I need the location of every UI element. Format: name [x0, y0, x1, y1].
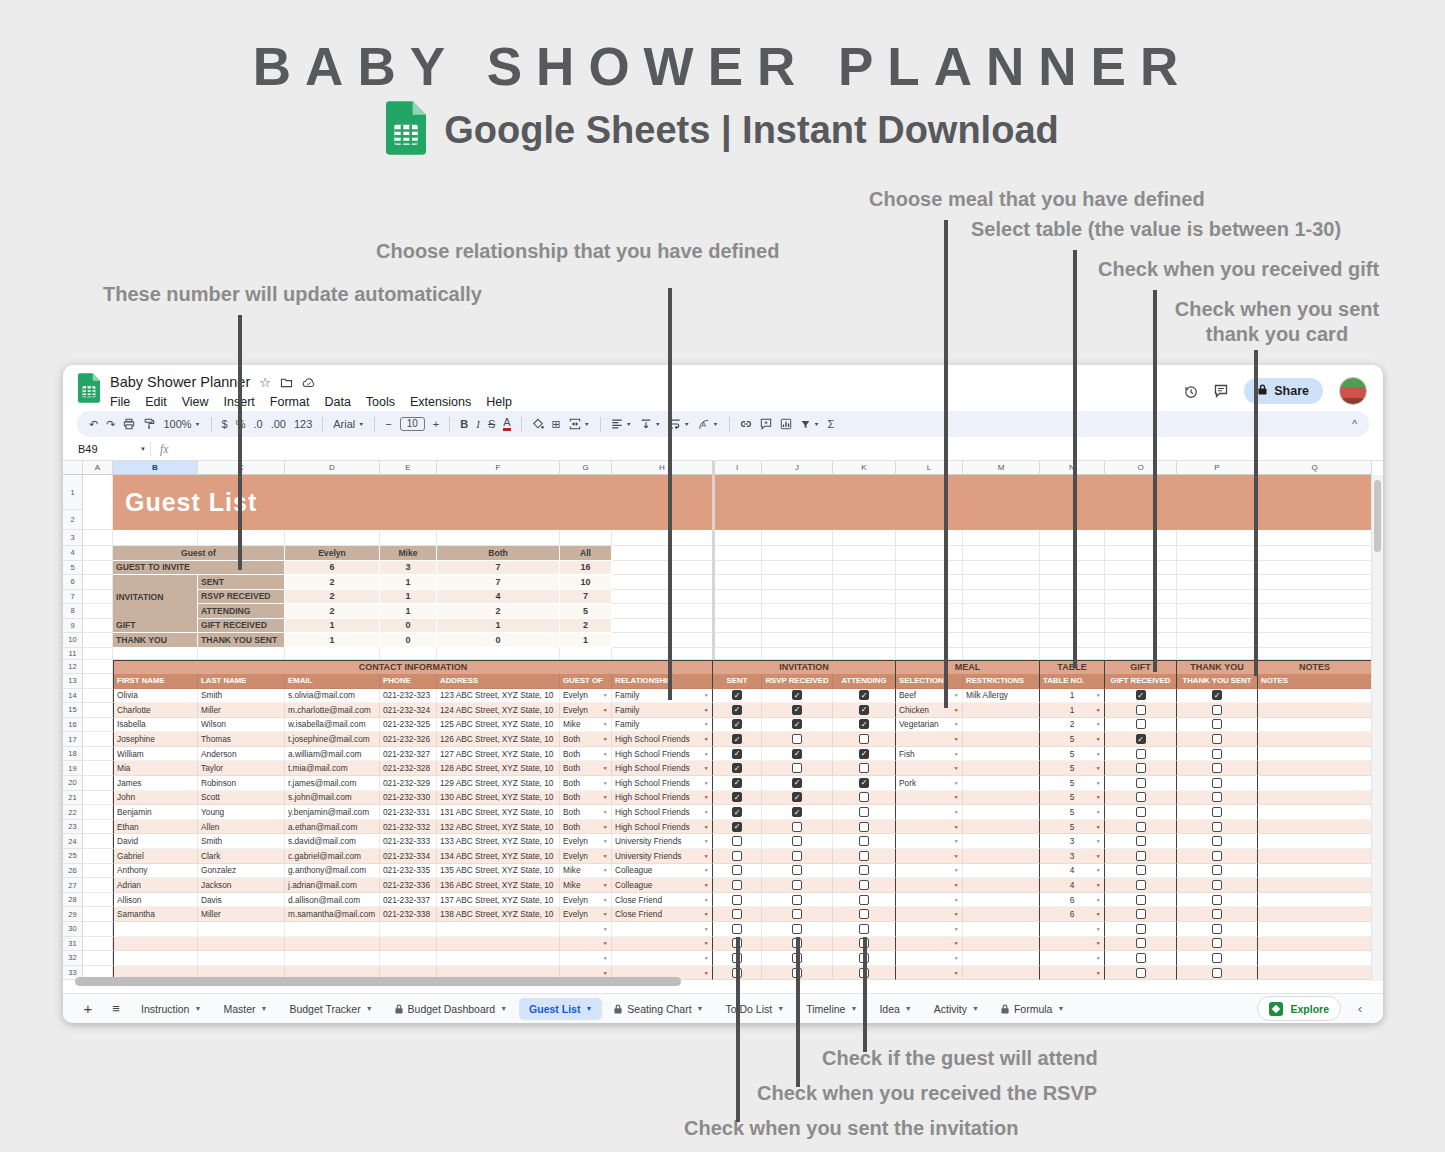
section-header-gift[interactable]: GIFT	[1105, 660, 1177, 674]
column-header-O[interactable]: O	[1105, 461, 1177, 475]
empty-cell[interactable]	[612, 530, 713, 546]
cell-restrictions[interactable]	[963, 747, 1040, 762]
checkbox-thank-you-sent[interactable]	[1212, 938, 1222, 948]
summary-sub-label[interactable]: GIFT RECEIVED	[198, 619, 285, 634]
cell-restrictions[interactable]	[963, 951, 1040, 966]
dropdown-arrow-icon[interactable]: ▼	[603, 751, 608, 756]
table-header-sent[interactable]: SENT	[713, 674, 762, 689]
column-header-L[interactable]: L	[896, 461, 963, 475]
cell-email[interactable]: t.josephine@mail.com	[285, 732, 380, 747]
empty-cell[interactable]	[612, 546, 713, 561]
font-select[interactable]: Arial▼	[333, 419, 364, 430]
row-header[interactable]: 29	[63, 907, 83, 922]
empty-cell[interactable]	[1105, 561, 1177, 576]
empty-cell[interactable]	[1258, 619, 1372, 634]
cell-address[interactable]: 137 ABC Street, XYZ State, 10	[437, 893, 560, 908]
cell-notes[interactable]	[1258, 820, 1372, 835]
dropdown-guest-of[interactable]: Evelyn▼	[560, 893, 612, 908]
summary-value[interactable]: 1	[380, 575, 437, 590]
dropdown-relationship[interactable]: ▼	[612, 951, 713, 966]
dropdown-arrow-icon[interactable]: ▼	[954, 824, 959, 829]
summary-header-evelyn[interactable]: Evelyn	[285, 546, 380, 561]
section-header-contact-information[interactable]: CONTACT INFORMATION	[113, 660, 713, 674]
vertical-scrollbar[interactable]	[1371, 475, 1383, 981]
empty-cell[interactable]	[1105, 648, 1177, 660]
dropdown-arrow-icon[interactable]: ▼	[704, 955, 709, 960]
summary-group-label[interactable]: GIFT	[113, 619, 198, 634]
insert-comment-icon[interactable]	[760, 418, 772, 430]
dropdown-relationship[interactable]: High School Friends▼	[612, 805, 713, 820]
row-header[interactable]: 3	[63, 530, 83, 546]
dropdown-arrow-icon[interactable]: ▼	[603, 897, 608, 902]
dropdown-table-no[interactable]: 3▼	[1040, 834, 1105, 849]
empty-cell[interactable]	[762, 648, 833, 660]
dropdown-arrow-icon[interactable]: ▼	[704, 722, 709, 727]
empty-cell[interactable]	[896, 604, 963, 619]
checkbox-gift-received[interactable]	[1136, 763, 1146, 773]
menu-edit[interactable]: Edit	[145, 395, 167, 409]
cell-phone[interactable]: 021-232-334	[380, 849, 437, 864]
dropdown-relationship[interactable]: Close Friend▼	[612, 893, 713, 908]
empty-cell[interactable]	[83, 864, 113, 879]
dropdown-meal-selection[interactable]: Fish▼	[896, 747, 963, 762]
empty-cell[interactable]	[1105, 575, 1177, 590]
empty-cell[interactable]	[713, 575, 762, 590]
tab-budget-dashboard[interactable]: Budget Dashboard▼	[385, 998, 518, 1020]
checkbox-sent[interactable]	[732, 851, 742, 861]
dropdown-arrow-icon[interactable]: ▼	[704, 707, 709, 712]
checkbox-attending[interactable]: ✓	[859, 705, 869, 715]
dropdown-arrow-icon[interactable]: ▼	[1096, 751, 1101, 756]
cell-email[interactable]: g.anthony@mail.com	[285, 864, 380, 879]
checkbox-gift-received[interactable]	[1136, 822, 1146, 832]
dropdown-arrow-icon[interactable]: ▼	[603, 926, 608, 931]
cell-restrictions[interactable]	[963, 849, 1040, 864]
checkbox-thank-you-sent[interactable]	[1212, 705, 1222, 715]
checkbox-thank-you-sent[interactable]	[1212, 924, 1222, 934]
checkbox-gift-received[interactable]	[1136, 880, 1146, 890]
row-header[interactable]: 27	[63, 878, 83, 893]
checkbox-gift-received[interactable]	[1136, 807, 1146, 817]
checkbox-sent[interactable]: ✓	[732, 778, 742, 788]
cell-first-name[interactable]	[113, 937, 198, 952]
empty-cell[interactable]	[83, 849, 113, 864]
dropdown-arrow-icon[interactable]: ▼	[704, 941, 709, 946]
dropdown-relationship[interactable]: Colleague▼	[612, 878, 713, 893]
checkbox-attending[interactable]	[859, 851, 869, 861]
dropdown-arrow-icon[interactable]: ▼	[1096, 868, 1101, 873]
checkbox-sent[interactable]: ✓	[732, 763, 742, 773]
empty-cell[interactable]	[83, 660, 113, 674]
checkbox-rsvp-received[interactable]	[792, 822, 802, 832]
checkbox-rsvp-received[interactable]: ✓	[792, 690, 802, 700]
row-header[interactable]: 23	[63, 820, 83, 835]
dropdown-arrow-icon[interactable]: ▼	[1096, 926, 1101, 931]
cell-phone[interactable]: 021-232-331	[380, 805, 437, 820]
empty-cell[interactable]	[83, 951, 113, 966]
empty-cell[interactable]	[560, 530, 612, 546]
cell-phone[interactable]: 021-232-332	[380, 820, 437, 835]
section-header-invitation[interactable]: INVITATION	[713, 660, 896, 674]
dropdown-arrow-icon[interactable]: ▼	[704, 970, 709, 975]
empty-cell[interactable]	[1258, 530, 1372, 546]
dropdown-table-no[interactable]: 5▼	[1040, 805, 1105, 820]
cell-phone[interactable]: 021-232-329	[380, 776, 437, 791]
cell-last-name[interactable]: Robinson	[198, 776, 285, 791]
column-header-B[interactable]: B	[113, 461, 198, 475]
checkbox-attending[interactable]	[859, 924, 869, 934]
empty-cell[interactable]	[612, 619, 713, 634]
increase-decimal-icon[interactable]: .00	[271, 419, 286, 430]
dropdown-table-no[interactable]: 5▼	[1040, 761, 1105, 776]
checkbox-sent[interactable]: ✓	[732, 734, 742, 744]
dropdown-arrow-icon[interactable]: ▼	[1096, 853, 1101, 858]
cell-notes[interactable]	[1258, 849, 1372, 864]
empty-cell[interactable]	[833, 561, 896, 576]
dropdown-table-no[interactable]: 1▼	[1040, 689, 1105, 704]
cell-last-name[interactable]: Clark	[198, 849, 285, 864]
empty-cell[interactable]	[762, 575, 833, 590]
empty-cell[interactable]	[833, 633, 896, 648]
chevron-down-icon[interactable]: ▼	[972, 1005, 979, 1012]
column-header-K[interactable]: K	[833, 461, 896, 475]
empty-cell[interactable]	[83, 820, 113, 835]
row-header[interactable]: 10	[63, 633, 83, 648]
cell-restrictions[interactable]	[963, 732, 1040, 747]
dropdown-meal-selection[interactable]: ▼	[896, 864, 963, 879]
summary-sub-label[interactable]: SENT	[198, 575, 285, 590]
dropdown-arrow-icon[interactable]: ▼	[603, 912, 608, 917]
empty-cell[interactable]	[380, 530, 437, 546]
row-header[interactable]: 18	[63, 747, 83, 762]
cell-last-name[interactable]: Davis	[198, 893, 285, 908]
name-box[interactable]: B49 ▼	[78, 443, 146, 455]
empty-cell[interactable]	[1177, 604, 1258, 619]
dropdown-arrow-icon[interactable]: ▼	[954, 839, 959, 844]
row-header[interactable]: 4	[63, 546, 83, 561]
checkbox-gift-received[interactable]	[1136, 938, 1146, 948]
empty-cell[interactable]	[896, 590, 963, 605]
dropdown-meal-selection[interactable]: ▼	[896, 732, 963, 747]
dropdown-arrow-icon[interactable]: ▼	[1096, 795, 1101, 800]
dropdown-arrow-icon[interactable]: ▼	[704, 824, 709, 829]
dropdown-relationship[interactable]: ▼	[612, 937, 713, 952]
tab-timeline[interactable]: Timeline▼	[796, 998, 867, 1020]
dropdown-arrow-icon[interactable]: ▼	[1096, 780, 1101, 785]
dropdown-relationship[interactable]: High School Friends▼	[612, 761, 713, 776]
empty-cell[interactable]	[83, 619, 113, 634]
cell-restrictions[interactable]	[963, 893, 1040, 908]
cell-notes[interactable]	[1258, 761, 1372, 776]
cell-address[interactable]: 138 ABC Street, XYZ State, 10	[437, 907, 560, 922]
cell-restrictions[interactable]	[963, 791, 1040, 806]
dropdown-arrow-icon[interactable]: ▼	[603, 868, 608, 873]
dropdown-arrow-icon[interactable]: ▼	[603, 766, 608, 771]
checkbox-attending[interactable]	[859, 792, 869, 802]
summary-value[interactable]: 4	[437, 590, 560, 605]
dropdown-guest-of[interactable]: Both▼	[560, 820, 612, 835]
checkbox-gift-received[interactable]	[1136, 909, 1146, 919]
checkbox-gift-received[interactable]	[1136, 719, 1146, 729]
checkbox-thank-you-sent[interactable]	[1212, 909, 1222, 919]
empty-cell[interactable]	[560, 648, 612, 660]
table-header-thank-you-sent[interactable]: THANK YOU SENT	[1177, 674, 1258, 689]
checkbox-attending[interactable]: ✓	[859, 778, 869, 788]
dropdown-guest-of[interactable]: Evelyn▼	[560, 703, 612, 718]
dropdown-arrow-icon[interactable]: ▼	[1096, 839, 1101, 844]
checkbox-rsvp-received[interactable]	[792, 865, 802, 875]
checkbox-attending[interactable]: ✓	[859, 719, 869, 729]
checkbox-rsvp-received[interactable]	[792, 895, 802, 905]
summary-value[interactable]: 6	[285, 561, 380, 576]
dropdown-guest-of[interactable]: Mike▼	[560, 878, 612, 893]
empty-cell[interactable]	[833, 530, 896, 546]
cell-last-name[interactable]: Gonzalez	[198, 864, 285, 879]
cell-email[interactable]: t.mia@mail.com	[285, 761, 380, 776]
cell-first-name[interactable]: Gabriel	[113, 849, 198, 864]
empty-cell[interactable]	[1105, 619, 1177, 634]
cell-address[interactable]	[437, 951, 560, 966]
cell-phone[interactable]: 021-232-323	[380, 689, 437, 704]
dropdown-arrow-icon[interactable]: ▼	[704, 926, 709, 931]
cell-email[interactable]: d.allison@mail.com	[285, 893, 380, 908]
italic-icon[interactable]: I	[476, 419, 480, 430]
chevron-down-icon[interactable]: ▼	[500, 1005, 507, 1012]
summary-value[interactable]: 1	[380, 590, 437, 605]
cell-last-name[interactable]: Taylor	[198, 761, 285, 776]
summary-value[interactable]: 1	[285, 619, 380, 634]
dropdown-arrow-icon[interactable]: ▼	[704, 868, 709, 873]
checkbox-gift-received[interactable]	[1136, 836, 1146, 846]
empty-cell[interactable]	[83, 732, 113, 747]
empty-cell[interactable]	[437, 648, 560, 660]
tab-budget-tracker[interactable]: Budget Tracker▼	[279, 998, 382, 1020]
vertical-scrollbar-thumb[interactable]	[1374, 480, 1381, 552]
checkbox-gift-received[interactable]	[1136, 778, 1146, 788]
dropdown-arrow-icon[interactable]: ▼	[954, 897, 959, 902]
undo-icon[interactable]: ↶	[89, 419, 98, 430]
checkbox-attending[interactable]	[859, 822, 869, 832]
empty-cell[interactable]	[83, 546, 113, 561]
menu-tools[interactable]: Tools	[366, 395, 395, 409]
functions-icon[interactable]: Σ	[828, 419, 835, 430]
empty-cell[interactable]	[83, 530, 113, 546]
cell-restrictions[interactable]	[963, 922, 1040, 937]
empty-cell[interactable]	[762, 546, 833, 561]
table-header-rsvp-received[interactable]: RSVP RECEIVED	[762, 674, 833, 689]
cell-address[interactable]: 136 ABC Street, XYZ State, 10	[437, 878, 560, 893]
empty-cell[interactable]	[83, 776, 113, 791]
empty-cell[interactable]	[83, 561, 113, 576]
empty-cell[interactable]	[896, 546, 963, 561]
dropdown-meal-selection[interactable]: ▼	[896, 878, 963, 893]
checkbox-sent[interactable]: ✓	[732, 749, 742, 759]
summary-group-label[interactable]	[113, 604, 198, 619]
row-header[interactable]: 11	[63, 648, 83, 660]
table-header-address[interactable]: ADDRESS	[437, 674, 560, 689]
dropdown-arrow-icon[interactable]: ▼	[1096, 707, 1101, 712]
cell-email[interactable]	[285, 922, 380, 937]
empty-cell[interactable]	[1177, 648, 1258, 660]
dropdown-table-no[interactable]: 5▼	[1040, 820, 1105, 835]
cell-phone[interactable]	[380, 937, 437, 952]
dropdown-meal-selection[interactable]: ▼	[896, 791, 963, 806]
cell-first-name[interactable]	[113, 922, 198, 937]
dropdown-arrow-icon[interactable]: ▼	[603, 970, 608, 975]
paint-format-icon[interactable]	[143, 418, 155, 430]
checkbox-thank-you-sent[interactable]: ✓	[1212, 690, 1222, 700]
sheet-title-banner[interactable]: Guest List	[113, 475, 1372, 530]
dropdown-table-no[interactable]: ▼	[1040, 951, 1105, 966]
empty-cell[interactable]	[1258, 575, 1372, 590]
cell-first-name[interactable]: Mia	[113, 761, 198, 776]
cell-email[interactable]	[285, 951, 380, 966]
empty-cell[interactable]	[83, 937, 113, 952]
empty-cell[interactable]	[113, 648, 198, 660]
chevron-down-icon[interactable]: ▼	[585, 1005, 592, 1012]
dropdown-arrow-icon[interactable]: ▼	[954, 912, 959, 917]
dropdown-arrow-icon[interactable]: ▼	[704, 882, 709, 887]
cell-email[interactable]: j.adrian@mail.com	[285, 878, 380, 893]
menu-file[interactable]: File	[110, 395, 130, 409]
empty-cell[interactable]	[612, 561, 713, 576]
dropdown-arrow-icon[interactable]: ▼	[603, 707, 608, 712]
dropdown-arrow-icon[interactable]: ▼	[954, 780, 959, 785]
empty-cell[interactable]	[713, 648, 762, 660]
checkbox-rsvp-received[interactable]	[792, 851, 802, 861]
cell-notes[interactable]	[1258, 907, 1372, 922]
cell-address[interactable]: 135 ABC Street, XYZ State, 10	[437, 864, 560, 879]
cell-email[interactable]: a.ethan@mail.com	[285, 820, 380, 835]
checkbox-sent[interactable]: ✓	[732, 719, 742, 729]
cell-last-name[interactable]: Thomas	[198, 732, 285, 747]
summary-group-label[interactable]: INVITATION	[113, 590, 198, 605]
dropdown-guest-of[interactable]: Both▼	[560, 776, 612, 791]
empty-cell[interactable]	[713, 590, 762, 605]
cell-first-name[interactable]: Benjamin	[113, 805, 198, 820]
checkbox-gift-received[interactable]	[1136, 968, 1146, 978]
checkbox-rsvp-received[interactable]: ✓	[792, 792, 802, 802]
checkbox-sent[interactable]: ✓	[732, 690, 742, 700]
row-header[interactable]: 24	[63, 834, 83, 849]
dropdown-table-no[interactable]: ▼	[1040, 966, 1105, 981]
table-header-last-name[interactable]: LAST NAME	[198, 674, 285, 689]
cell-notes[interactable]	[1258, 689, 1372, 704]
empty-cell[interactable]	[1177, 561, 1258, 576]
empty-cell[interactable]	[1105, 546, 1177, 561]
checkbox-rsvp-received[interactable]	[792, 909, 802, 919]
dropdown-relationship[interactable]: Colleague▼	[612, 864, 713, 879]
increase-font-size-icon[interactable]: +	[433, 419, 439, 430]
dropdown-arrow-icon[interactable]: ▼	[954, 941, 959, 946]
dropdown-relationship[interactable]: Family▼	[612, 718, 713, 733]
dropdown-arrow-icon[interactable]: ▼	[603, 722, 608, 727]
empty-cell[interactable]	[896, 619, 963, 634]
dropdown-arrow-icon[interactable]: ▼	[954, 809, 959, 814]
summary-group-label[interactable]	[113, 575, 198, 590]
checkbox-rsvp-received[interactable]: ✓	[792, 705, 802, 715]
dropdown-guest-of[interactable]: Mike▼	[560, 718, 612, 733]
dropdown-arrow-icon[interactable]: ▼	[954, 751, 959, 756]
cell-restrictions[interactable]	[963, 776, 1040, 791]
dropdown-table-no[interactable]: 4▼	[1040, 878, 1105, 893]
column-header-A[interactable]: A	[83, 461, 113, 475]
dropdown-arrow-icon[interactable]: ▼	[704, 751, 709, 756]
cell-notes[interactable]	[1258, 805, 1372, 820]
row-header[interactable]: 12	[63, 660, 83, 674]
dropdown-arrow-icon[interactable]: ▼	[603, 780, 608, 785]
summary-sub-label[interactable]: ATTENDING	[198, 604, 285, 619]
cell-notes[interactable]	[1258, 922, 1372, 937]
summary-value[interactable]: 3	[380, 561, 437, 576]
dropdown-guest-of[interactable]: Evelyn▼	[560, 834, 612, 849]
cell-notes[interactable]	[1258, 834, 1372, 849]
table-header-phone[interactable]: PHONE	[380, 674, 437, 689]
dropdown-arrow-icon[interactable]: ▼	[954, 853, 959, 858]
cell-email[interactable]: s.david@mail.com	[285, 834, 380, 849]
summary-value[interactable]: 0	[437, 633, 560, 648]
dropdown-table-no[interactable]: 5▼	[1040, 776, 1105, 791]
empty-cell[interactable]	[963, 633, 1040, 648]
tab-instruction[interactable]: Instruction▼	[131, 998, 211, 1020]
vertical-align-icon[interactable]: ▼	[640, 418, 661, 430]
add-sheet-icon[interactable]: +	[75, 1000, 101, 1017]
dropdown-table-no[interactable]: ▼	[1040, 937, 1105, 952]
empty-cell[interactable]	[113, 530, 198, 546]
cell-first-name[interactable]: Olivia	[113, 689, 198, 704]
row-header[interactable]: 25	[63, 849, 83, 864]
dropdown-guest-of[interactable]: Evelyn▼	[560, 849, 612, 864]
empty-cell[interactable]	[83, 907, 113, 922]
filter-icon[interactable]: ▼	[800, 419, 820, 430]
cell-notes[interactable]	[1258, 893, 1372, 908]
dropdown-arrow-icon[interactable]: ▼	[954, 955, 959, 960]
empty-cell[interactable]	[833, 619, 896, 634]
dropdown-arrow-icon[interactable]: ▼	[1096, 737, 1101, 742]
dropdown-arrow-icon[interactable]: ▼	[1096, 809, 1101, 814]
row-header[interactable]: 15	[63, 703, 83, 718]
empty-cell[interactable]	[83, 834, 113, 849]
dropdown-arrow-icon[interactable]: ▼	[954, 882, 959, 887]
cell-email[interactable]: c.gabriel@mail.com	[285, 849, 380, 864]
checkbox-attending[interactable]	[859, 734, 869, 744]
dropdown-arrow-icon[interactable]: ▼	[1096, 824, 1101, 829]
dropdown-meal-selection[interactable]: ▼	[896, 849, 963, 864]
column-header-G[interactable]: G	[560, 461, 612, 475]
checkbox-sent[interactable]: ✓	[732, 822, 742, 832]
row-header[interactable]: 32	[63, 951, 83, 966]
dropdown-guest-of[interactable]: Evelyn▼	[560, 689, 612, 704]
cell-restrictions[interactable]	[963, 966, 1040, 981]
empty-cell[interactable]	[896, 575, 963, 590]
dropdown-arrow-icon[interactable]: ▼	[704, 912, 709, 917]
chevron-down-icon[interactable]: ▼	[697, 1005, 704, 1012]
explore-button[interactable]: Explore	[1257, 996, 1341, 1021]
checkbox-gift-received[interactable]	[1136, 924, 1146, 934]
font-size-input[interactable]: 10	[400, 417, 425, 431]
cell-address[interactable]: 131 ABC Street, XYZ State, 10	[437, 805, 560, 820]
dropdown-arrow-icon[interactable]: ▼	[1096, 970, 1101, 975]
dropdown-arrow-icon[interactable]: ▼	[1096, 693, 1101, 698]
dropdown-arrow-icon[interactable]: ▼	[954, 795, 959, 800]
cell-email[interactable]: r.james@mail.com	[285, 776, 380, 791]
dropdown-guest-of[interactable]: Both▼	[560, 805, 612, 820]
section-header-thank-you[interactable]: THANK YOU	[1177, 660, 1258, 674]
cell-address[interactable]: 126 ABC Street, XYZ State, 10	[437, 732, 560, 747]
row-header[interactable]: 6	[63, 575, 83, 590]
chevron-down-icon[interactable]: ▼	[194, 1005, 201, 1012]
checkbox-attending[interactable]	[859, 895, 869, 905]
